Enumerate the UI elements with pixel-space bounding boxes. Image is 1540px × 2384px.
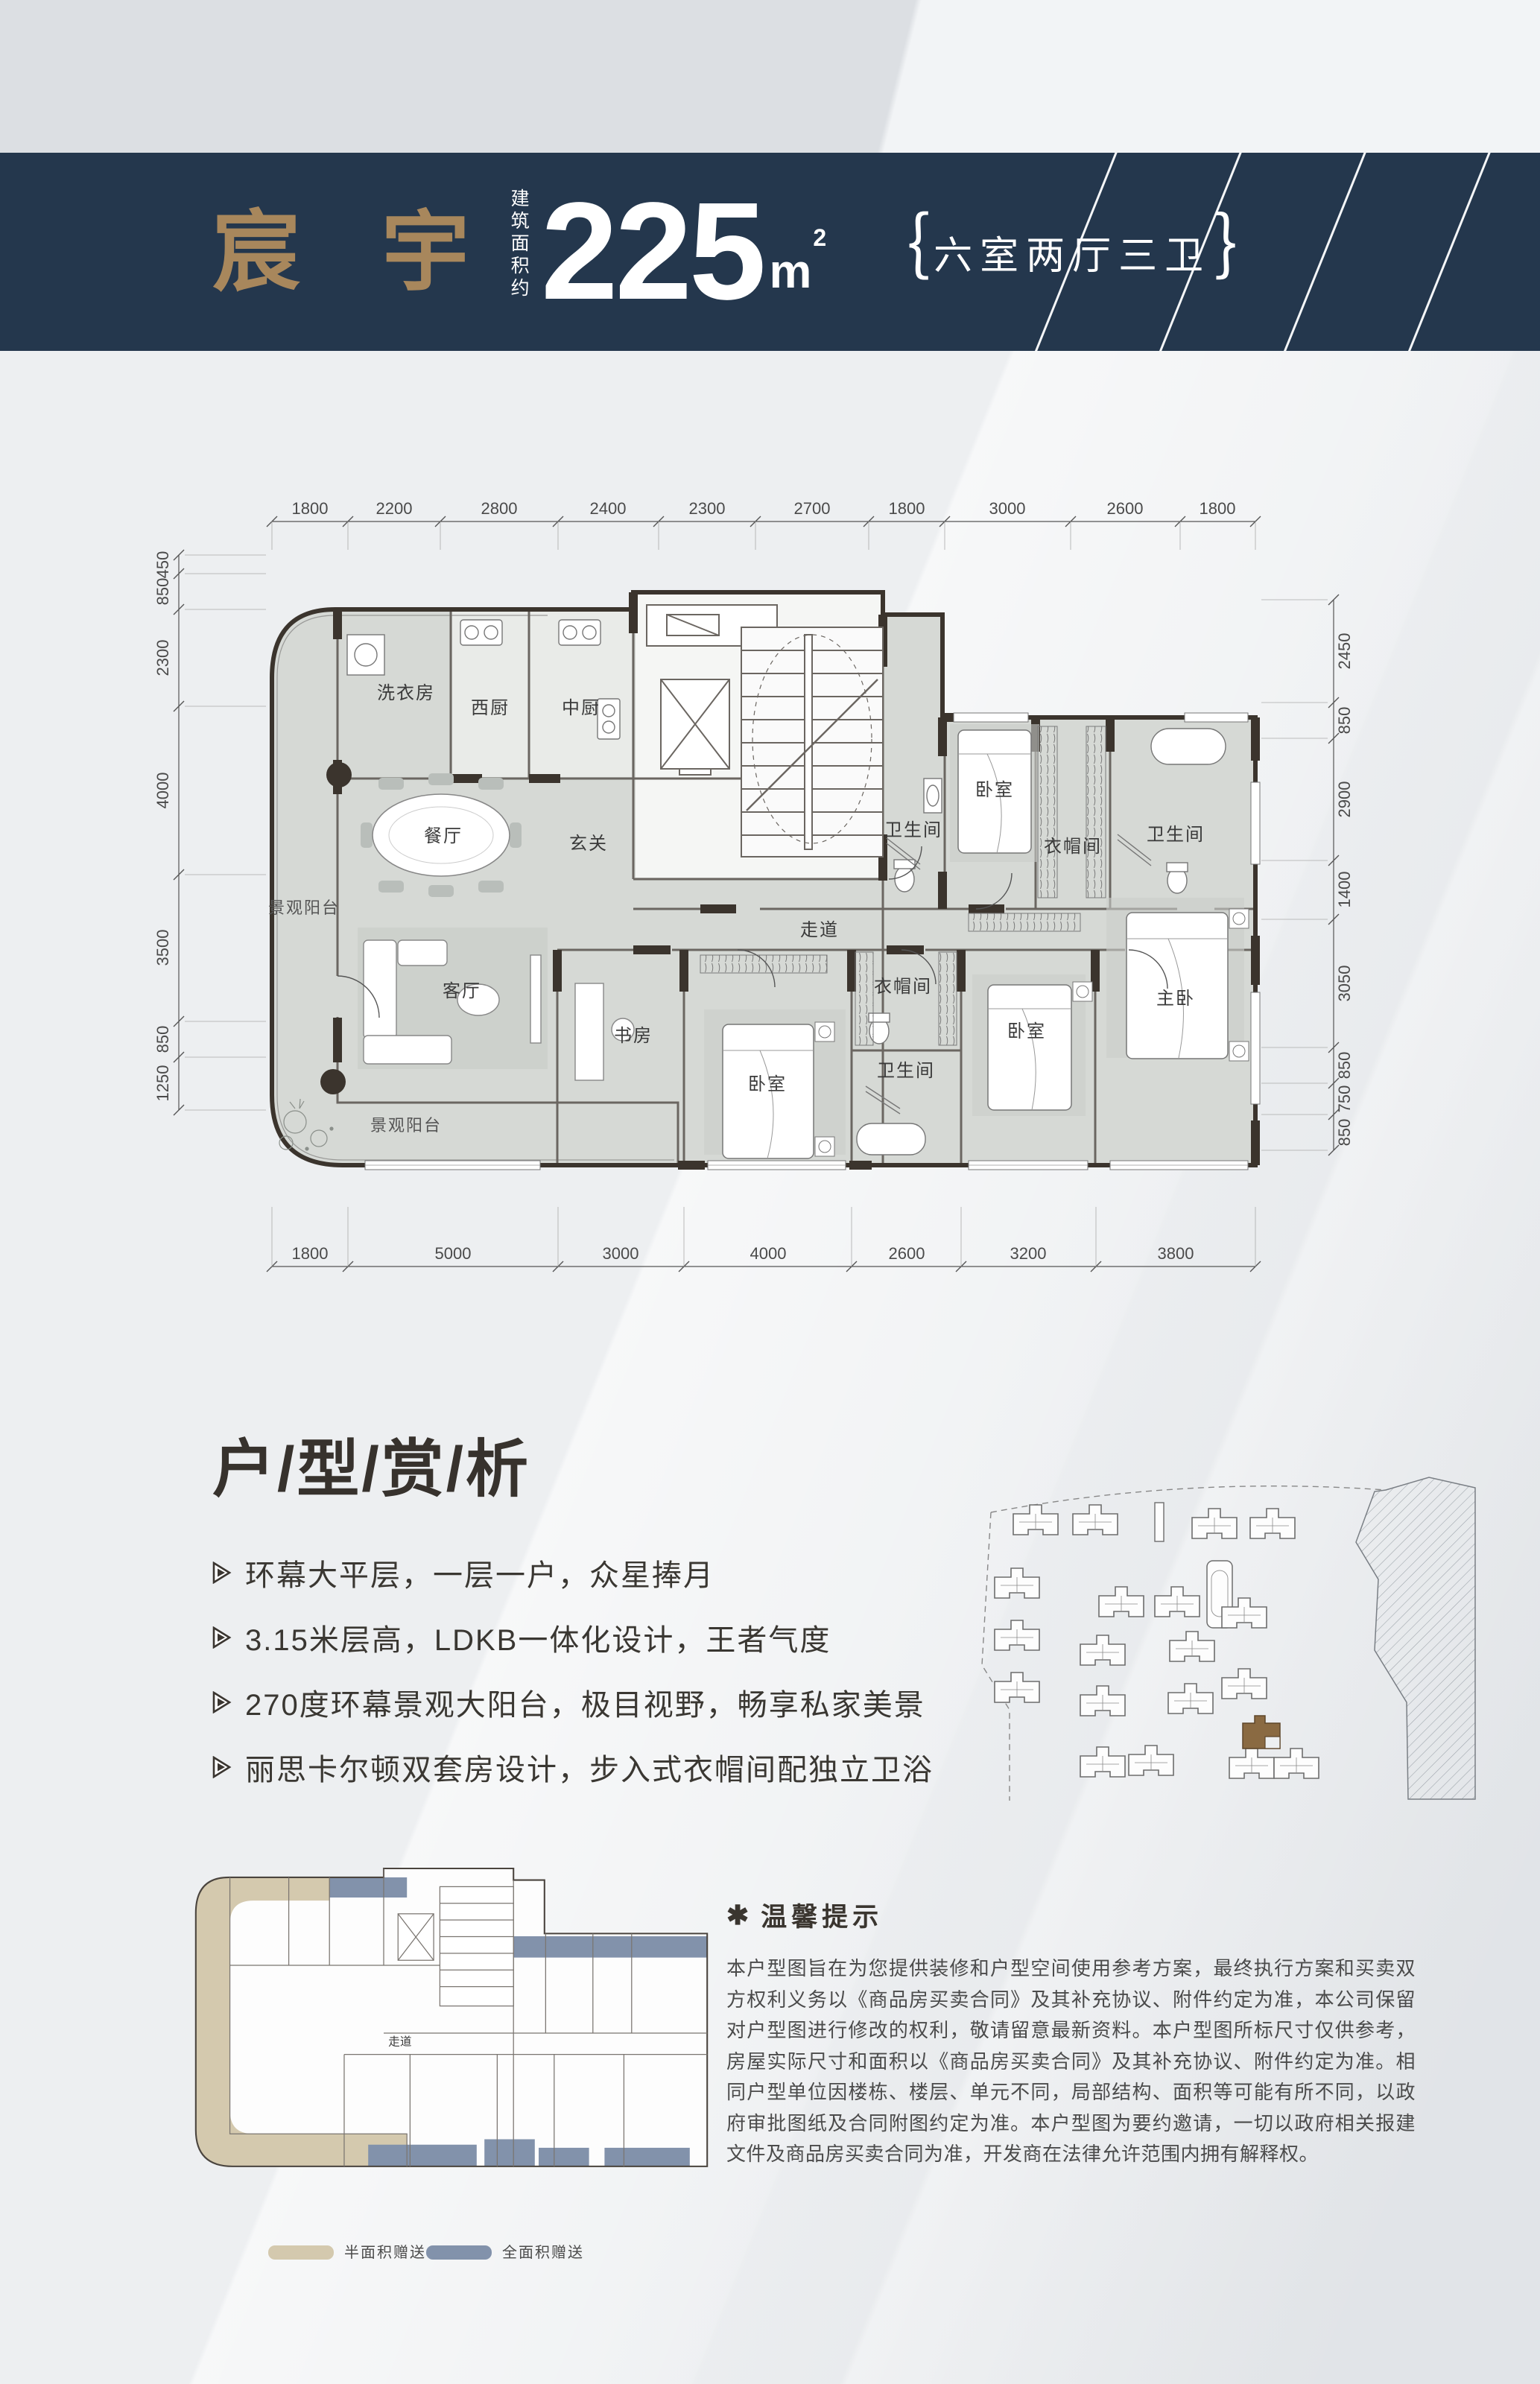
dim-label: 5000 <box>435 1244 472 1263</box>
room-label: 卧室 <box>1007 1021 1046 1042</box>
dim-label: 4000 <box>750 1244 787 1263</box>
dim-label: 2200 <box>376 499 413 518</box>
site-boundary <box>982 1512 1010 1801</box>
analysis-bullet: 环幕大平层，一层一户，众星捧月 <box>212 1551 883 1594</box>
area-unit: m2 <box>769 244 825 299</box>
dim-label: 1400 <box>1335 872 1354 908</box>
dim-label: 3000 <box>989 499 1026 518</box>
room-label: 卧室 <box>748 1074 787 1094</box>
keyplan-corridor-label: 走道 <box>388 2035 411 2049</box>
bullet-text: 环幕大平层，一层一户，众星捧月 <box>245 1551 714 1594</box>
dim-label: 3500 <box>153 930 172 966</box>
room-label: 客厅 <box>443 981 481 1001</box>
bracket-close: ｝ <box>1214 213 1285 285</box>
room-label: 西厨 <box>471 698 510 718</box>
header-content: 宸 宇 建筑面积约 225 m2 ｛ 六室两厅三卫 ｝ <box>212 153 1285 351</box>
notice-title-text: 温馨提示 <box>761 1896 883 1934</box>
dim-label: 1800 <box>1200 499 1236 518</box>
room-label: 衣帽间 <box>874 977 932 997</box>
dim-label: 2400 <box>590 499 627 518</box>
dimension-chain-left: 450 850 2300 4000 3500 850 1250 <box>153 550 266 1115</box>
analysis-title: 户/型/赏/析 <box>212 1419 883 1509</box>
room-label: 洗衣房 <box>377 683 435 703</box>
dim-label: 3800 <box>1158 1244 1194 1263</box>
dim-label: 450 <box>153 551 172 579</box>
dim-label: 1800 <box>292 499 329 518</box>
dim-label: 2700 <box>794 499 831 518</box>
dim-label: 4000 <box>153 773 172 809</box>
room-label: 走道 <box>800 920 839 940</box>
dim-label: 850 <box>153 1026 172 1053</box>
notice-body: 本户型图旨在为您提供装修和户型空间使用参考方案，最终执行方案和买卖双方权利义务以… <box>726 1953 1416 2170</box>
bed-master <box>1106 898 1249 1061</box>
bed-bottom-right <box>972 974 1092 1116</box>
room-label: 景观阳台 <box>268 898 340 917</box>
unit-exponent: 2 <box>813 224 826 251</box>
area-label-vertical: 建筑面积约 <box>505 188 532 315</box>
dim-label: 2300 <box>689 499 726 518</box>
analysis-bullet: 270度环幕景观大阳台，极目视野，畅享私家美景 <box>212 1681 883 1724</box>
legend-label: 全面积赠送 <box>502 2244 584 2261</box>
legend-swatch-full <box>426 2245 492 2260</box>
river-hatch <box>1356 1477 1475 1799</box>
analysis-bullet: 丽思卡尔顿双套房设计，步入式衣帽间配独立卫浴 <box>212 1746 883 1789</box>
dim-label: 850 <box>1335 1119 1354 1147</box>
room-label: 卫生间 <box>877 1061 935 1081</box>
analysis-bullet: 3.15米层高，LDKB一体化设计，王者气度 <box>212 1616 883 1659</box>
room-label: 衣帽间 <box>1044 837 1102 857</box>
dim-label: 850 <box>1335 1052 1354 1080</box>
unit-m: m <box>769 244 811 298</box>
bullet-text: 270度环幕景观大阳台，极目视野，畅享私家美景 <box>245 1681 925 1724</box>
asterisk-icon: ✱ <box>726 1900 749 1931</box>
highlighted-building <box>1243 1716 1280 1749</box>
area-value: 225 <box>541 189 763 314</box>
analysis-section: 户/型/赏/析 环幕大平层，一层一户，众星捧月 3.15米层高，LDKB一体化设… <box>212 1419 883 1810</box>
header-band: 宸 宇 建筑面积约 225 m2 ｛ 六室两厅三卫 ｝ <box>0 153 1540 351</box>
notice-title: ✱ 温馨提示 <box>726 1896 1416 1934</box>
dim-label: 2600 <box>1107 499 1144 518</box>
top-strip <box>0 0 1540 153</box>
analysis-list: 环幕大平层，一层一户，众星捧月 3.15米层高，LDKB一体化设计，王者气度 2… <box>212 1551 883 1789</box>
room-label: 中厨 <box>562 698 601 718</box>
diagonal-line <box>1396 153 1499 351</box>
bullet-text: 3.15米层高，LDKB一体化设计，王者气度 <box>245 1616 831 1659</box>
dim-label: 750 <box>1335 1085 1354 1113</box>
room-label: 书房 <box>614 1026 653 1046</box>
dim-label: 850 <box>153 578 172 606</box>
diagonal-line <box>1272 153 1375 351</box>
floor-plan: 洗衣房 西厨 中厨 餐厅 玄关 走道 客厅 书房 卧室 卫生间 衣帽间 卫生间 … <box>112 462 1378 1296</box>
dim-label: 3200 <box>1010 1244 1047 1263</box>
triangle-bullet-icon <box>212 1626 232 1649</box>
key-plan: 走道 <box>190 1834 719 2199</box>
triangle-bullet-icon <box>212 1562 232 1584</box>
dim-label: 2450 <box>1335 633 1354 670</box>
dim-label: 2300 <box>153 640 172 676</box>
dimension-chain-bottom: 1800 5000 3000 4000 2600 3200 3800 <box>267 1207 1261 1272</box>
room-label: 景观阳台 <box>370 1116 442 1135</box>
dim-label: 2600 <box>889 1244 925 1263</box>
notice-section: ✱ 温馨提示 本户型图旨在为您提供装修和户型空间使用参考方案，最终执行方案和买卖… <box>726 1896 1416 2170</box>
dim-label: 3050 <box>1335 966 1354 1002</box>
dim-label: 850 <box>1335 707 1354 735</box>
site-plan <box>969 1449 1490 1807</box>
room-label: 主卧 <box>1156 989 1195 1009</box>
dim-label: 2800 <box>481 499 518 518</box>
room-label: 玄关 <box>569 834 608 854</box>
dimension-chain-right: 2450 850 2900 1400 3050 850 750 850 <box>1261 595 1354 1155</box>
bullet-text: 丽思卡尔顿双套房设计，步入式衣帽间配独立卫浴 <box>245 1746 934 1789</box>
room-label: 餐厅 <box>424 826 463 846</box>
legend-swatch-half <box>268 2245 334 2260</box>
site-boundary <box>991 1486 1386 1512</box>
room-label: 卫生间 <box>1147 825 1205 845</box>
triangle-bullet-icon <box>212 1756 232 1778</box>
legend: 半面积赠送 全面积赠送 <box>261 2236 678 2269</box>
layout-spec: ｛ 六室两厅三卫 ｝ <box>859 216 1285 288</box>
room-label: 卫生间 <box>884 820 942 840</box>
room-label: 卧室 <box>975 780 1014 800</box>
dim-label: 2900 <box>1335 782 1354 818</box>
dim-label: 1250 <box>153 1065 172 1102</box>
layout-spec-text: 六室两厅三卫 <box>934 224 1211 280</box>
dim-label: 1800 <box>292 1244 329 1263</box>
bracket-open: ｛ <box>859 213 931 285</box>
project-name: 宸 宇 <box>212 208 495 296</box>
triangle-bullet-icon <box>212 1691 232 1713</box>
dim-label: 3000 <box>603 1244 639 1263</box>
legend-label: 半面积赠送 <box>344 2244 426 2261</box>
dim-label: 1800 <box>889 499 925 518</box>
dimension-chain-top: 1800 2200 2800 2400 2300 2700 1800 3000 … <box>267 499 1261 550</box>
